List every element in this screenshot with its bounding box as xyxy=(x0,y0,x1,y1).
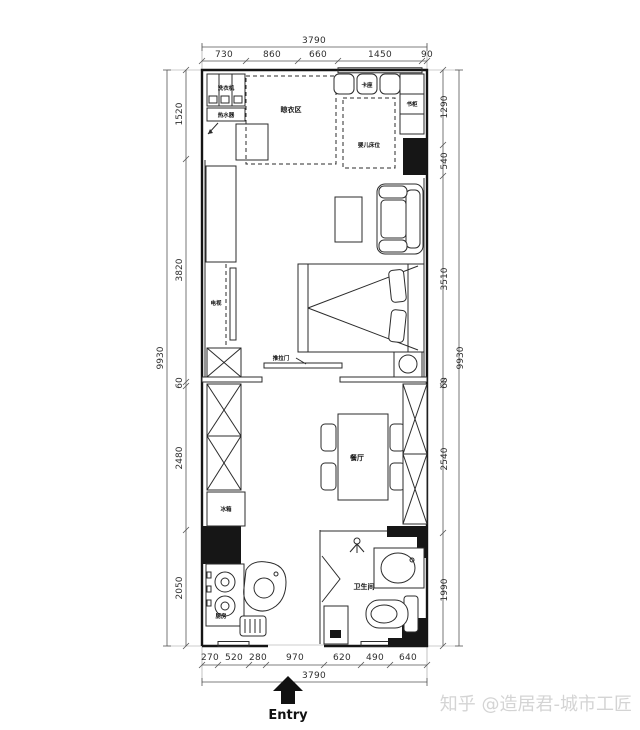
pillow xyxy=(388,269,406,302)
dim-bottom-total: 3790 xyxy=(302,671,326,681)
bedroom-zone: 电视 推拉门 xyxy=(206,166,424,377)
column-block-bottom-wall xyxy=(388,638,427,647)
dim-right-seg-4: 2540 xyxy=(440,447,450,470)
dim-right-seg-0: 1290 xyxy=(440,95,450,118)
entry-arrow xyxy=(273,676,303,704)
column-block-top-right xyxy=(403,138,427,175)
tall-cabinet-left xyxy=(207,384,241,490)
shower-head xyxy=(350,538,364,553)
dim-top-seg-1: 860 xyxy=(263,50,281,60)
dimension-right: 1290 540 3510 60 2540 1990 9930 xyxy=(440,67,466,649)
dim-left-total: 9930 xyxy=(156,346,166,369)
dim-top-seg-2: 660 xyxy=(309,50,327,60)
coffee-table xyxy=(335,197,362,242)
tall-cabinet-right xyxy=(403,384,427,524)
sliding-door-panel xyxy=(264,363,342,368)
chair xyxy=(321,424,336,451)
nightstand xyxy=(394,352,422,377)
fridge: 冰箱 xyxy=(207,492,245,526)
sliding-door-label: 推拉门 xyxy=(273,354,290,362)
dim-bottom-seg-5: 490 xyxy=(366,653,384,663)
entry-label: Entry xyxy=(268,708,308,723)
sofa xyxy=(377,184,423,254)
dimension-top: 3790 730 860 660 1450 90 xyxy=(199,36,433,64)
toilet-bowl xyxy=(366,600,408,628)
laundry-zone: 洗衣机 热水器 晾衣区 卡座 婴儿床位 书柜 xyxy=(207,74,424,168)
bench-seat-label: 卡座 xyxy=(361,81,373,89)
floor-grate xyxy=(240,616,266,636)
kitchen-label: 厨房 xyxy=(215,612,227,620)
dim-right-seg-2: 3510 xyxy=(440,267,450,290)
dim-right-seg-1: 540 xyxy=(440,152,450,169)
dim-bottom-seg-1: 520 xyxy=(225,653,243,663)
column-block-kitchen xyxy=(203,526,241,564)
dim-top-seg-4: 90 xyxy=(421,50,433,60)
baby-bed-label: 婴儿床位 xyxy=(358,141,381,149)
drying-area-label: 晾衣区 xyxy=(281,105,302,114)
divider-wall-right xyxy=(340,377,427,382)
water-heater-label: 热水器 xyxy=(218,111,235,119)
dim-bottom-seg-6: 640 xyxy=(399,653,417,663)
sofa-arm xyxy=(379,186,407,198)
watermark: 知乎 @造居君-城市工匠 xyxy=(440,694,632,715)
dim-bottom-seg-0: 270 xyxy=(201,653,219,663)
dim-top-seg-3: 1450 xyxy=(368,50,392,60)
dim-left-seg-0: 1520 xyxy=(175,102,185,125)
floor-plan-drawing: 3790 730 860 660 1450 90 270 520 280 970… xyxy=(0,0,640,730)
dining-zone: 冰箱 餐厅 xyxy=(207,384,427,526)
bathroom-zone: 卫生间 xyxy=(322,538,424,644)
dim-right-seg-3: 60 xyxy=(440,377,450,389)
floor-plan-page: 3790 730 860 660 1450 90 270 520 280 970… xyxy=(0,0,640,730)
dim-left-seg-1: 3820 xyxy=(175,258,185,281)
wardrobe xyxy=(206,166,236,262)
double-bed xyxy=(298,264,424,352)
baby-bed-outline xyxy=(343,98,395,168)
dim-right-total: 9930 xyxy=(456,346,466,369)
dim-left-seg-3: 2480 xyxy=(175,446,185,469)
dining-set: 餐厅 xyxy=(321,414,405,500)
bathroom-sink xyxy=(374,548,424,588)
kitchen-sink xyxy=(244,562,286,611)
toilet xyxy=(366,596,418,632)
dim-left-seg-2: 60 xyxy=(175,377,185,389)
dim-top-total: 3790 xyxy=(302,36,326,46)
dryer-rack xyxy=(236,124,268,160)
pillow xyxy=(388,309,406,342)
sofa-back xyxy=(406,190,420,248)
dim-top-seg-0: 730 xyxy=(215,50,233,60)
dimension-bottom: 270 520 280 970 620 490 640 3790 xyxy=(199,653,430,686)
divider-wall-left xyxy=(202,377,262,382)
cabinet-x xyxy=(207,348,241,377)
seat-cushion xyxy=(334,74,354,94)
entry: Entry xyxy=(268,676,308,723)
fridge-label: 冰箱 xyxy=(220,505,232,513)
chair xyxy=(321,463,336,490)
dim-bottom-seg-4: 620 xyxy=(333,653,351,663)
washer-label: 洗衣机 xyxy=(218,84,235,92)
tv-label: 电视 xyxy=(210,299,222,307)
dining-label: 餐厅 xyxy=(349,453,364,462)
dimension-left: 9930 1520 3820 60 2480 2050 xyxy=(156,67,189,649)
folding-door xyxy=(322,556,340,602)
kitchen-zone: 厨房 xyxy=(206,562,286,636)
dim-left-seg-4: 2050 xyxy=(175,576,185,599)
sofa-arm xyxy=(379,240,407,252)
dim-bottom-seg-3: 970 xyxy=(286,653,304,663)
seat-cushion xyxy=(380,74,400,94)
drying-area-outline xyxy=(246,76,336,164)
dim-right-seg-5: 1990 xyxy=(440,578,450,601)
bath-washer xyxy=(324,606,348,644)
dim-bottom-seg-2: 280 xyxy=(249,653,267,663)
tv-panel xyxy=(230,268,236,340)
bookcase-label: 书柜 xyxy=(406,100,418,108)
bathroom-label: 卫生间 xyxy=(354,582,375,591)
